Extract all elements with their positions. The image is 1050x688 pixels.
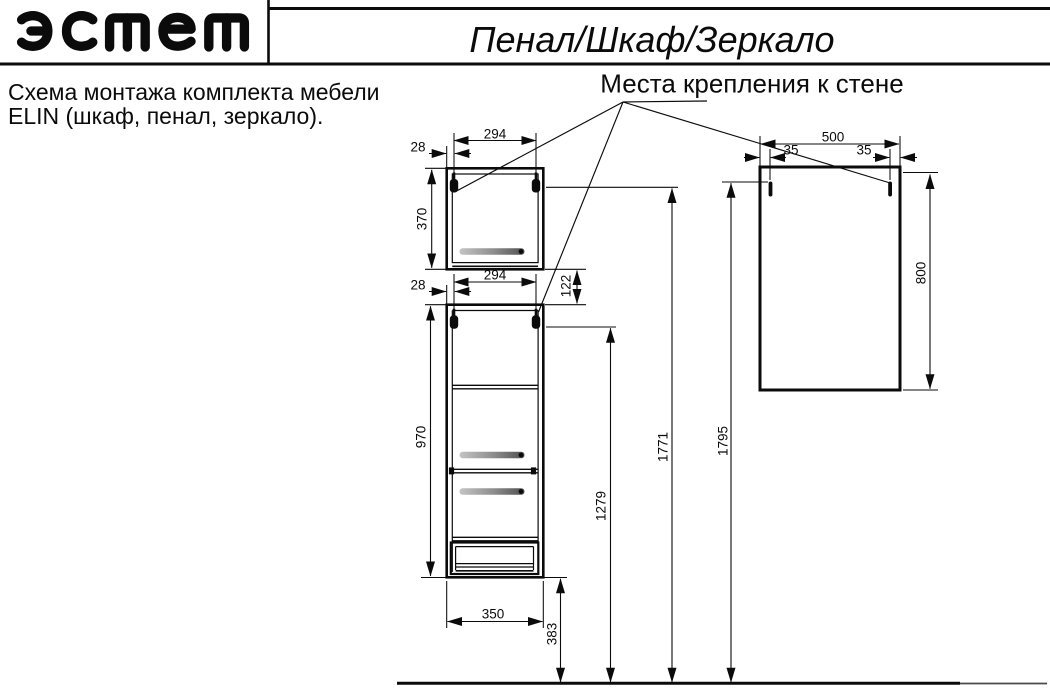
wall-hook-icon <box>532 173 540 193</box>
dim-mirror-offset-right: 35 <box>856 143 871 158</box>
hinge-mark <box>531 467 536 474</box>
wall-mount-label: Места крепления к стене <box>600 69 903 100</box>
wall-hook-icon <box>450 309 458 329</box>
dim-lower-offset: 28 <box>410 278 425 293</box>
dim-mirror-width: 500 <box>822 130 845 145</box>
dimension-lines <box>429 141 930 683</box>
mirror-slot-icon <box>769 182 773 197</box>
mirror-drawing <box>760 167 900 390</box>
lower-cabinet-drawing <box>447 305 544 578</box>
wall-hook-icon <box>450 173 458 193</box>
scheme-note: Схема монтажа комплекта мебели ELIN (шка… <box>8 80 380 128</box>
extension-lines <box>421 133 938 628</box>
estet-logo: эстет <box>16 8 250 54</box>
dim-base-width: 350 <box>482 607 505 622</box>
drawer-handle-icon <box>460 488 525 495</box>
dim-mirror-offset-left: 35 <box>783 143 798 158</box>
dim-cabinet-gap: 122 <box>558 275 573 298</box>
scheme-note-line2: ELIN (шкаф, пенал, зеркало). <box>8 104 380 128</box>
door-handle-icon <box>460 452 525 459</box>
hinge-mark <box>449 467 454 474</box>
dim-mount-1795: 1795 <box>716 426 731 456</box>
dim-upper-width: 294 <box>484 126 507 141</box>
estet-logo-icon <box>16 8 250 54</box>
dim-mount-1279: 1279 <box>594 491 609 521</box>
open-niche <box>451 543 539 575</box>
dim-upper-height: 370 <box>415 208 430 231</box>
mirror-slot-icon <box>888 182 892 197</box>
dim-upper-offset: 28 <box>410 140 425 155</box>
page-title: Пенал/Шкаф/Зеркало <box>469 19 834 61</box>
dim-floor-gap: 383 <box>545 623 560 646</box>
mounting-scheme-page: { "header": { "logo_text": "эстет", "tit… <box>0 0 1050 688</box>
upper-cabinet-drawing <box>447 168 544 269</box>
dim-mirror-height: 800 <box>913 262 928 285</box>
dim-mount-1771: 1771 <box>656 432 671 462</box>
scheme-note-line1: Схема монтажа комплекта мебели <box>8 80 380 104</box>
dim-lower-height: 970 <box>414 426 429 449</box>
door-handle-icon <box>460 248 525 255</box>
dim-lower-width: 294 <box>484 268 507 283</box>
